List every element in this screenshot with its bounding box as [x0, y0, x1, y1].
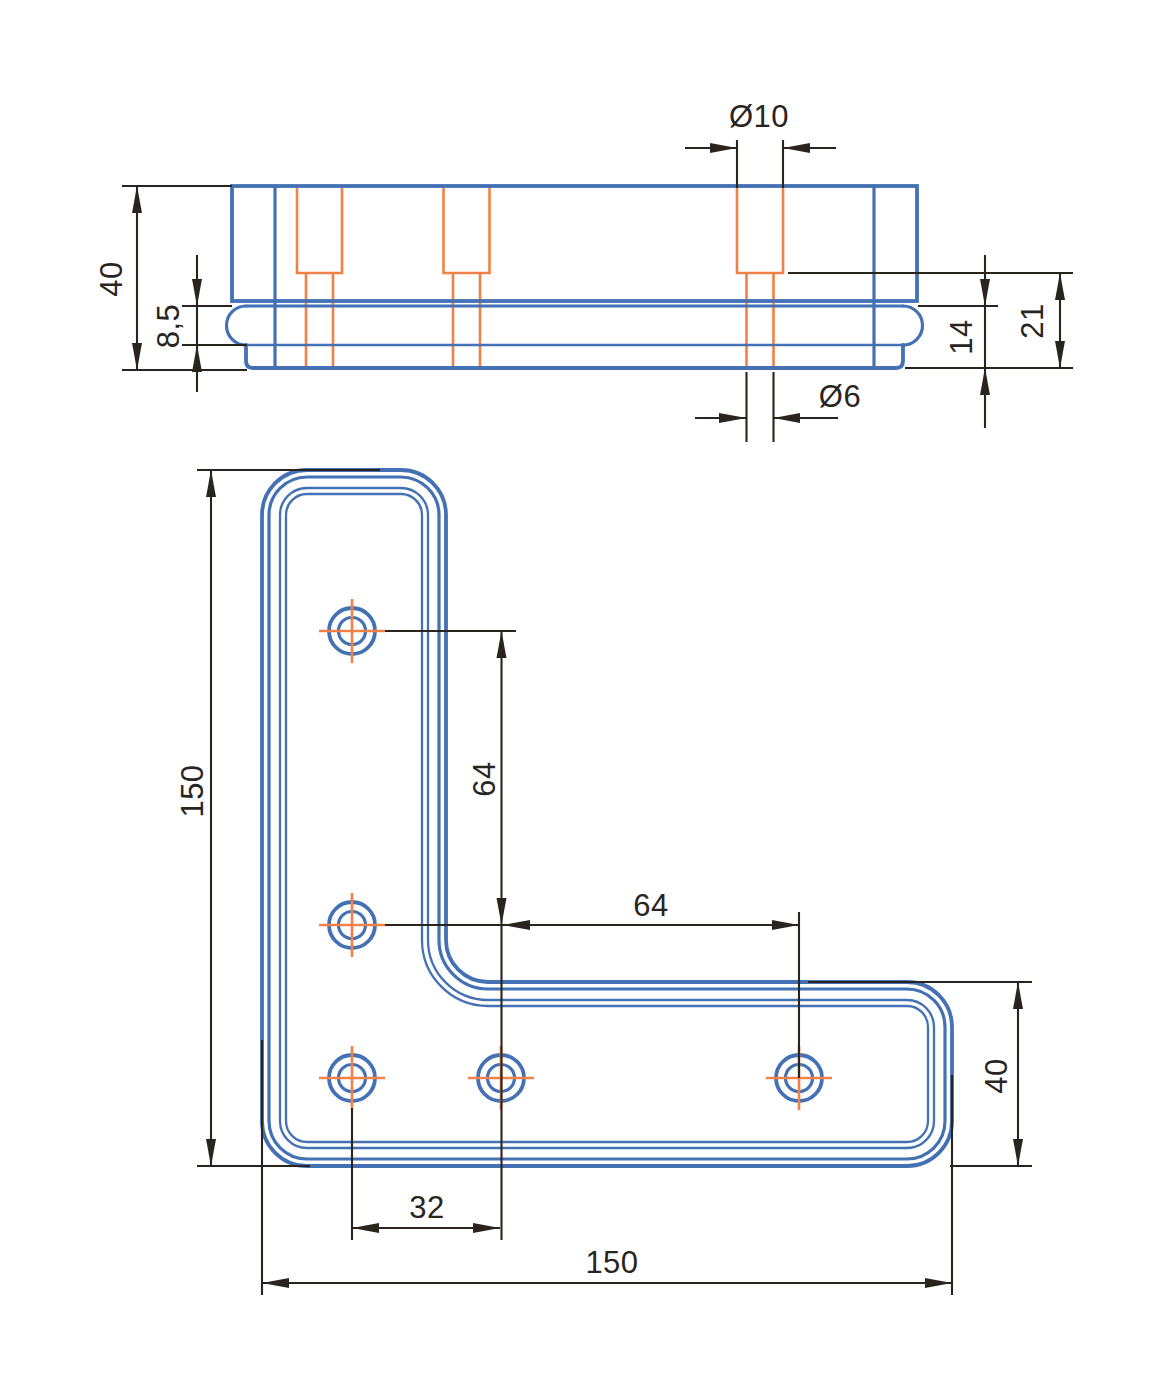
dim-label-8-5: 8,5 — [151, 304, 186, 349]
plan-view: 150 64 64 — [175, 470, 1032, 1295]
arrowhead — [925, 1278, 952, 1288]
arrowhead — [783, 143, 810, 153]
arrowhead — [352, 1223, 379, 1233]
arrowhead — [206, 470, 216, 497]
arrowhead — [192, 279, 202, 306]
dim-overall-height: 150 — [175, 470, 380, 1166]
flange-bottom-outline — [246, 345, 903, 368]
plan-view-dimensions: 150 64 64 — [175, 470, 1032, 1295]
arrowhead — [1013, 982, 1023, 1009]
upper-body-outline — [232, 186, 917, 301]
dim-label-dia10: Ø10 — [729, 99, 789, 134]
side-view-dimensions: Ø10 40 8,5 — [94, 99, 1073, 442]
side-view: Ø10 40 8,5 — [94, 99, 1073, 442]
arrowhead — [262, 1278, 289, 1288]
dim-plate-thickness: 14 — [905, 255, 1073, 428]
arrowhead — [503, 920, 530, 930]
side-view-outline — [227, 186, 923, 368]
arrowhead — [206, 1139, 216, 1166]
inner-contour-2 — [286, 494, 928, 1142]
arrowhead — [710, 143, 737, 153]
counterbore-hole-3 — [737, 187, 783, 273]
flange-rounded-edge-left — [227, 306, 246, 345]
dim-label-21: 21 — [1015, 303, 1050, 338]
drawing-canvas: Two-view technical drawing of an L-shape… — [0, 0, 1175, 1399]
hole-top — [319, 599, 385, 663]
inner-contour-1 — [280, 488, 934, 1148]
arrowhead — [719, 413, 747, 423]
arrowhead — [192, 345, 202, 372]
dim-hole-pitch-small: 32 — [352, 1108, 500, 1240]
hole-bottom-left — [319, 1046, 385, 1110]
hidden-hole-lines — [297, 187, 783, 367]
dim-through-hole-dia: Ø6 — [695, 372, 861, 442]
dim-label-150-left: 150 — [175, 764, 210, 817]
technical-drawing: Two-view technical drawing of an L-shape… — [0, 0, 1175, 1399]
arrowhead — [1055, 341, 1065, 368]
dim-counterbore-dia: Ø10 — [685, 99, 836, 188]
dim-label-64-vertical: 64 — [467, 761, 502, 796]
arrowhead — [132, 186, 142, 213]
arrowhead — [1055, 273, 1065, 300]
plan-holes — [319, 599, 832, 1110]
counterbore-hole-1 — [297, 187, 342, 273]
arrowhead — [497, 631, 507, 658]
body-edge-contour — [269, 477, 945, 1159]
dim-label-64-horizontal: 64 — [633, 888, 668, 923]
arrowhead — [497, 898, 507, 925]
dim-label-32: 32 — [409, 1190, 444, 1225]
arrowhead — [980, 368, 990, 395]
dim-label-40-plan: 40 — [979, 1058, 1014, 1093]
hole-middle — [319, 893, 385, 957]
dim-label-150-bottom: 150 — [585, 1245, 638, 1280]
arrowhead — [132, 343, 142, 370]
dim-hole-depth: 21 — [788, 273, 1073, 368]
arrowhead — [980, 279, 990, 306]
dim-label-dia6: Ø6 — [819, 379, 861, 414]
arrowhead — [772, 920, 799, 930]
arrowhead — [473, 1223, 500, 1233]
dim-label-14: 14 — [944, 319, 979, 354]
arrowhead — [1013, 1139, 1023, 1166]
counterbore-hole-2 — [444, 187, 490, 273]
arrowhead — [774, 413, 801, 423]
flange-rounded-edge-right — [903, 306, 923, 345]
dim-label-40: 40 — [94, 261, 129, 296]
